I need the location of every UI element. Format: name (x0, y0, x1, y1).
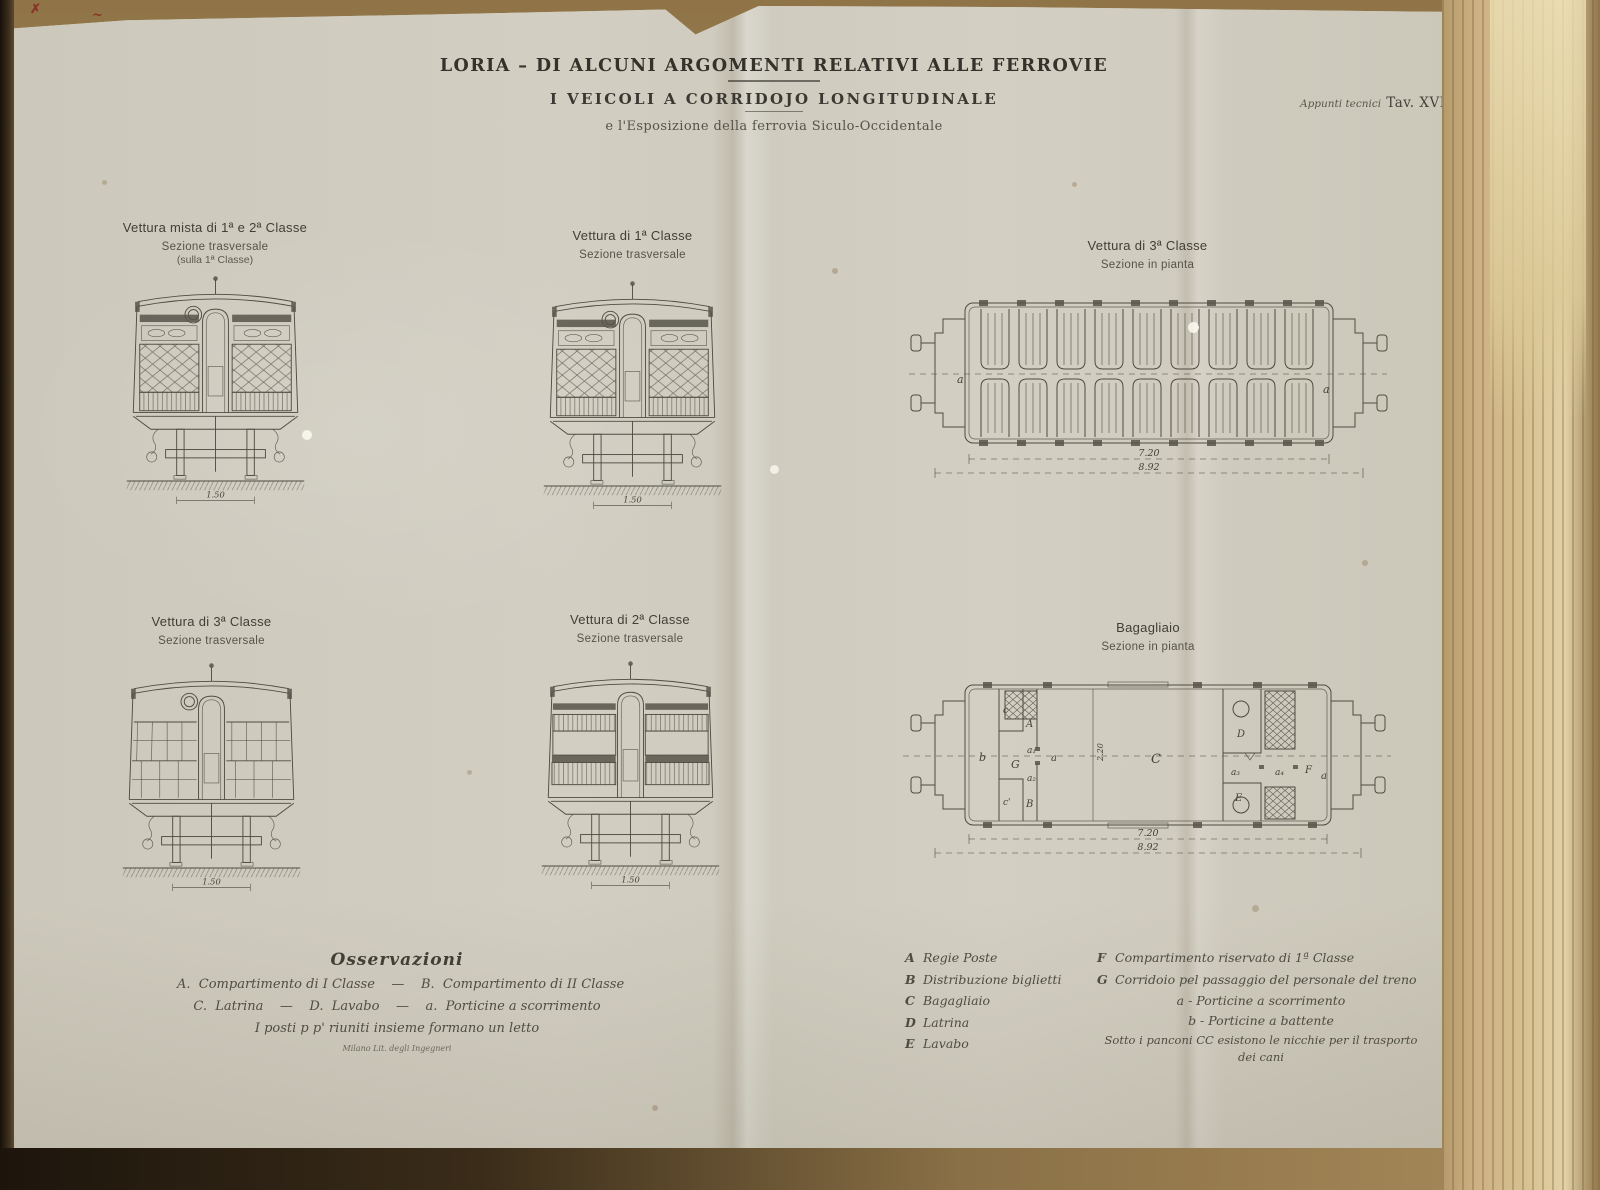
dim-body-label: 7.20 (1138, 448, 1159, 459)
legend-text: Bagagliaio (923, 993, 990, 1008)
legend-item: CBagagliaio (905, 993, 1095, 1008)
roof-and-lamp (131, 663, 292, 710)
legend-letter: F (1097, 950, 1115, 965)
dimension-lines: 7.20 8.92 (935, 828, 1361, 858)
legend-letter: E (905, 1036, 923, 1051)
osservazioni-block: Osservazioni A. Compartimento di I Class… (177, 950, 617, 1053)
figure-subtitle: Sezione trasversale (105, 241, 325, 253)
plate-number: Tav. XVI (1386, 95, 1445, 111)
legend-text: Latrina (923, 1015, 969, 1030)
figure-title: Vettura mista di 1ª e 2ª Classe (105, 220, 325, 235)
cross-section-drawing-terza: 1.50 (119, 661, 304, 892)
paper-stain (652, 1105, 658, 1111)
plate-title-line1: LORIA – DI ALCUNI ARGOMENTI RELATIVI ALL… (412, 56, 1136, 76)
figure-vettura-seconda: Vettura di 2ª Classe Sezione trasversale (524, 612, 736, 890)
legend-item: FCompartimento riservato di 1ª Classe (1097, 950, 1425, 965)
carriage-body (129, 693, 293, 803)
scale-bar: 1.50 (173, 877, 251, 891)
paper-stain (1188, 322, 1199, 333)
label-c-prime: c' (1003, 798, 1011, 808)
dim-width-label: 2.20 (1096, 743, 1105, 762)
legend-text: Compartimento riservato di 1ª Classe (1115, 950, 1354, 965)
corridor-door (617, 692, 643, 797)
scale-bar: 1.50 (591, 875, 669, 889)
bench-seats-bottom (981, 379, 1313, 437)
car-body (965, 303, 1333, 443)
plate-title-line2: I VEICOLI A CORRIDOJO LONGITUDINALE (412, 90, 1136, 108)
underframe (550, 421, 714, 484)
seat-right-fringed (645, 703, 709, 784)
label-a4: a₄ (1275, 768, 1284, 778)
legend-column-right: FCompartimento riservato di 1ª Classe GC… (1097, 950, 1425, 1064)
paper-stain (302, 430, 312, 440)
cross-section-drawing-mista: 1.50 (123, 274, 308, 505)
legend-item: DLatrina (905, 1015, 1095, 1030)
figure-subtitle: Sezione in pianta (890, 259, 1405, 271)
plate-header: LORIA – DI ALCUNI ARGOMENTI RELATIVI ALL… (412, 56, 1136, 134)
paper-stain (102, 180, 107, 185)
legend-letter: D (905, 1015, 923, 1030)
book-right-page-edges-light (1490, 0, 1586, 420)
legend-item: ARegie Poste (905, 950, 1095, 965)
paper-stain (1072, 182, 1077, 187)
wall-posts (979, 300, 1324, 446)
scale-label: 1.50 (621, 875, 640, 885)
title-underline (728, 80, 820, 82)
label-a3: a₃ (1231, 768, 1240, 778)
legend-text: Corridoio pel passaggio del personale de… (1115, 972, 1417, 987)
scale-bar: 1.50 (594, 495, 672, 509)
label-C: C (1151, 752, 1161, 767)
cross-section-drawing-seconda: 1.50 (538, 659, 723, 890)
label-A: A (1025, 719, 1033, 730)
legend-door-a: a - Porticine a scorrimento (1097, 993, 1425, 1008)
legend-item: GCorridoio pel passaggio del personale d… (1097, 972, 1425, 987)
label-G: G (1011, 758, 1020, 771)
figure-title: Vettura di 1ª Classe (525, 228, 740, 243)
legend-letter: G (1097, 972, 1115, 987)
figure-subtitle: Sezione trasversale (525, 249, 740, 261)
plan-drawing-bagagliaio: b G c c' A B a₁ a₂ a C 2.20 D E F a₃ a₄ … (893, 661, 1403, 861)
legend-item: BDistribuzione biglietti (905, 972, 1095, 987)
seat-left-wooden (132, 722, 197, 798)
scale-bar: 1.50 (176, 490, 254, 504)
seat-right-tufted (232, 315, 291, 411)
corridor-label-left: a (957, 373, 964, 386)
red-ink-mark: ✗ (30, 2, 41, 17)
figure-subtitle: Sezione trasversale (524, 633, 736, 645)
dim-total-label: 8.92 (1138, 462, 1159, 473)
paper-stain (467, 770, 472, 775)
legend-note-line2: dei cani (1097, 1050, 1425, 1064)
corridor-door (202, 309, 228, 412)
plate-note: Appunti tecnici (1300, 98, 1381, 110)
legend-text: Regie Poste (923, 950, 997, 965)
figure-subtitle2: (sulla 1ª Classe) (105, 254, 325, 266)
label-b: b (979, 751, 986, 764)
paper-stain (1362, 560, 1368, 566)
corridor-door (620, 314, 646, 417)
seat-right-tufted (649, 320, 708, 416)
legend-text: Distribuzione biglietti (923, 972, 1061, 987)
osservazioni-line3: I posti p p' riuniti insieme formano un … (177, 1021, 617, 1036)
figure-subtitle: Sezione trasversale (104, 635, 319, 647)
figure-title: Vettura di 3ª Classe (104, 614, 319, 629)
seat-left-fringed (551, 703, 615, 784)
plate-title-line3: e l'Esposizione della ferrovia Siculo-Oc… (412, 119, 1136, 134)
osservazioni-line1: A. Compartimento di I Classe — B. Compar… (177, 977, 617, 992)
figure-subtitle: Sezione in pianta (888, 641, 1408, 653)
seat-left-tufted (139, 315, 198, 411)
plan-drawing-terza: a a 7.20 8.92 (895, 281, 1400, 481)
scale-label: 1.50 (623, 495, 642, 505)
buffers (911, 335, 1387, 411)
scale-label: 1.50 (206, 490, 225, 500)
label-D: D (1236, 729, 1245, 740)
legend-item: ELavabo (905, 1036, 1095, 1051)
paper-stain (832, 268, 838, 274)
underframe (133, 416, 297, 479)
scale-label: 1.50 (202, 877, 221, 887)
legend-text: Lavabo (923, 1036, 969, 1051)
seat-left-tufted (557, 320, 616, 416)
figure-vettura-terza: Vettura di 3ª Classe Sezione trasversale (104, 614, 319, 892)
legend-note-line1: Sotto i panconi CC esistono le nicchie p… (1097, 1033, 1425, 1047)
label-B: B (1025, 799, 1033, 810)
plate-page: LORIA – DI ALCUNI ARGOMENTI RELATIVI ALL… (12, 0, 1448, 1190)
label-a-mid: a (1051, 753, 1057, 764)
dim-total-label: 8.92 (1137, 842, 1158, 853)
bench-seats-top (981, 309, 1313, 369)
label-c: c (1003, 706, 1008, 716)
label-a-right: a (1321, 771, 1327, 782)
lithographer-credit: Milano Lit. degli Ingegneri (177, 1044, 617, 1053)
book-left-edge (0, 0, 14, 1190)
end-platform-right (1333, 319, 1363, 427)
red-ink-mark: ~ (92, 8, 103, 23)
legend-column-left: ARegie Poste BDistribuzione biglietti CB… (905, 950, 1095, 1058)
figure-title: Vettura di 3ª Classe (890, 238, 1405, 253)
label-a1: a₁ (1027, 746, 1036, 756)
osservazioni-title: Osservazioni (177, 950, 617, 970)
label-a2: a₂ (1027, 774, 1036, 784)
scanned-plate-photo: { "header": { "title_line1": "LORIA – DI… (0, 0, 1600, 1190)
legend-letter: B (905, 972, 923, 987)
figure-title: Vettura di 2ª Classe (524, 612, 736, 627)
subtitle-underline (745, 111, 803, 112)
paper-stain (770, 465, 779, 474)
dimension-lines: 7.20 8.92 (935, 448, 1363, 478)
legend-door-b: b - Porticine a battente (1097, 1013, 1425, 1028)
osservazioni-line2: C. Latrina — D. Lavabo — a. Porticine a … (177, 999, 617, 1014)
end-platform-left (935, 701, 965, 809)
corridor-label-right: a (1323, 383, 1330, 396)
seat-right-wooden (226, 722, 291, 798)
figure-terza-pianta: Vettura di 3ª Classe Sezione in pianta (890, 238, 1405, 481)
label-E: E (1234, 793, 1243, 804)
legend-letter: A (905, 950, 923, 965)
underframe (129, 803, 293, 866)
figure-bagagliaio: Bagagliaio Sezione in pianta (888, 620, 1408, 861)
end-platform-right (1331, 701, 1361, 809)
figure-vettura-mista: Vettura mista di 1ª e 2ª Classe Sezione … (105, 220, 325, 505)
book-bottom-edge (0, 1148, 1600, 1190)
cross-section-drawing-prima: 1.50 (540, 279, 725, 510)
legend-letter: C (905, 993, 923, 1008)
figure-title: Bagagliaio (888, 620, 1408, 635)
figure-vettura-prima: Vettura di 1ª Classe Sezione trasversale (525, 228, 740, 510)
paper-stain (1252, 905, 1259, 912)
underframe (548, 801, 712, 864)
roof-and-lamp (550, 661, 711, 697)
dim-body-label: 7.20 (1137, 828, 1158, 839)
corridor-door (199, 696, 225, 799)
label-F: F (1304, 765, 1313, 776)
